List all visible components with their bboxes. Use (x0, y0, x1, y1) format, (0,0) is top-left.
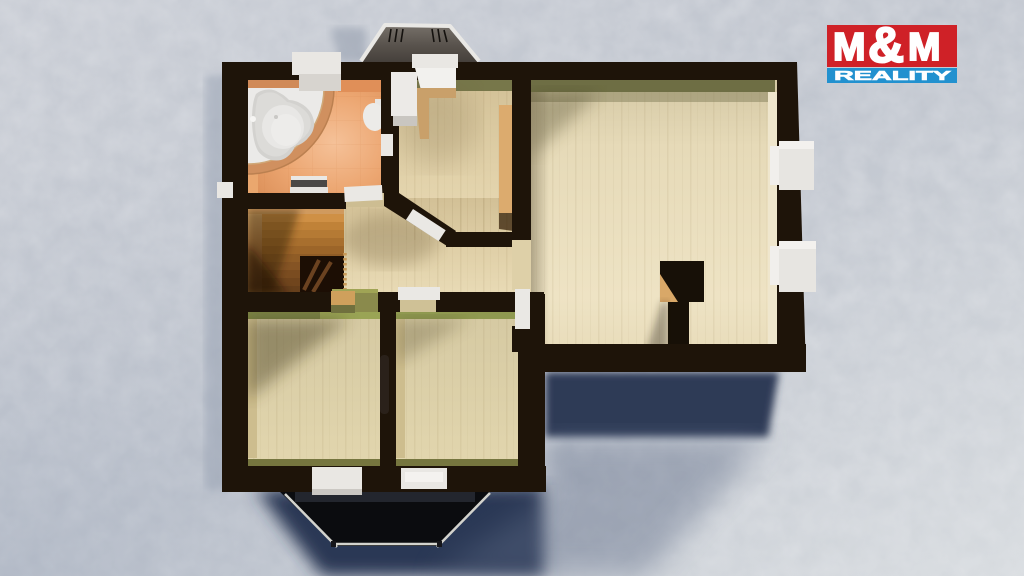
svg-text:REALITY: REALITY (834, 68, 952, 83)
svg-text:M: M (833, 26, 866, 69)
svg-text:&: & (868, 17, 904, 73)
svg-text:M: M (908, 26, 941, 69)
